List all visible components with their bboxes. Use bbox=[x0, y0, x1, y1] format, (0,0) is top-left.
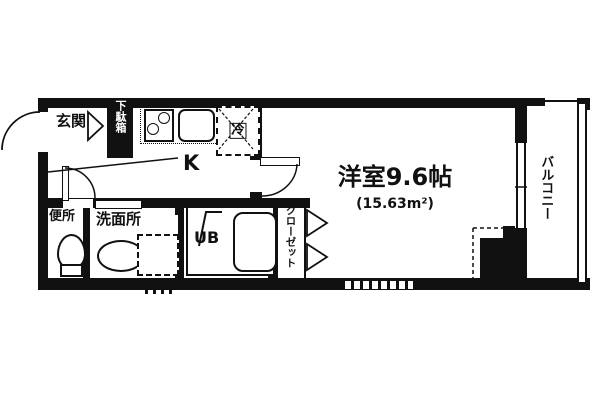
unit-bath-label: UB bbox=[194, 229, 219, 247]
pillar-dashed-boundary bbox=[473, 228, 503, 278]
entrance-label: 玄関 bbox=[56, 113, 86, 130]
room-door-swing-arc bbox=[262, 164, 297, 196]
entrance-step-line bbox=[48, 158, 178, 172]
closet-folding-door-icon bbox=[307, 244, 327, 270]
balcony-label: バルコニー bbox=[538, 155, 552, 220]
front-door-swing-arc bbox=[2, 112, 40, 150]
fridge-cross-lines bbox=[219, 109, 253, 149]
closet-folding-door-icon bbox=[307, 210, 327, 236]
closet-label: クローゼット bbox=[284, 205, 296, 268]
main-room-area-label: (15.63m²) bbox=[320, 197, 470, 212]
main-room-label: 洋室9.6帖 bbox=[320, 164, 470, 190]
entrance-door-arrow-icon bbox=[88, 112, 103, 140]
kitchen-label: K bbox=[183, 152, 199, 175]
washroom-label: 洗面所 bbox=[96, 211, 141, 228]
toilet-label: 便所 bbox=[49, 210, 75, 224]
floorplan: 下駄箱 冷 玄関 bbox=[0, 0, 600, 410]
plan-linework bbox=[0, 0, 600, 410]
toilet-door-swing-arc bbox=[65, 168, 95, 198]
